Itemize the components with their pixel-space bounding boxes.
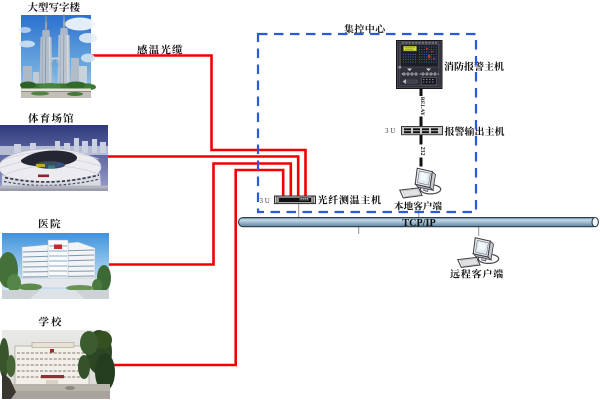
svg-text:TCP/IP: TCP/IP xyxy=(402,218,435,229)
svg-text:232: 232 xyxy=(419,147,425,156)
svg-text:RELAY: RELAY xyxy=(419,97,425,116)
svg-text:3 U: 3 U xyxy=(260,197,270,205)
svg-text:3 U: 3 U xyxy=(385,127,395,135)
